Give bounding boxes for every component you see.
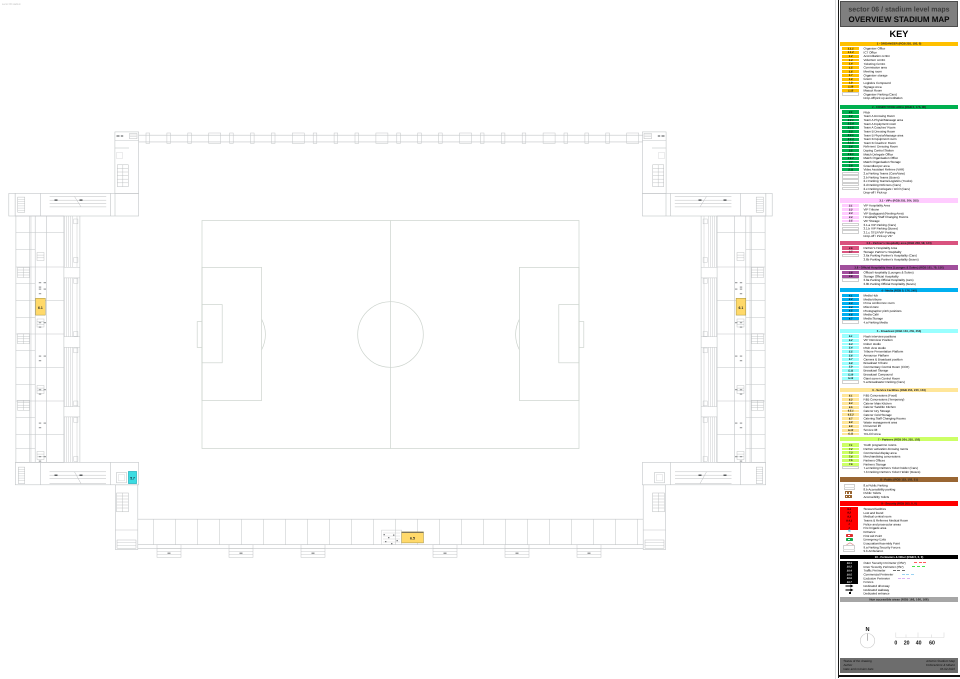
svg-text:TELCO Area: TELCO Area: [864, 432, 881, 436]
svg-text:Team B Physio/Massage area: Team B Physio/Massage area: [864, 133, 904, 137]
svg-text:F&B Concessions (Temporary): F&B Concessions (Temporary): [864, 397, 905, 401]
svg-text:Photographer pitch positions: Photographer pitch positions: [864, 309, 903, 313]
svg-text:0: 0: [894, 641, 897, 647]
svg-text:Camera & Broadcast position: Camera & Broadcast position: [864, 357, 903, 361]
svg-text:7.b Parking Partners Ticket Ho: 7.b Parking Partners Ticket Holder (Buse…: [864, 470, 921, 474]
svg-text:First Aid Point: First Aid Point: [864, 534, 883, 538]
svg-text:Referees' Dressing Room: Referees' Dressing Room: [864, 145, 899, 149]
svg-text:Team B Coaches' Room: Team B Coaches' Room: [864, 141, 897, 145]
svg-text:Organiser Office: Organiser Office: [864, 47, 886, 51]
svg-text:Partners Offices: Partners Offices: [864, 458, 886, 462]
svg-text:Teams & Referees Medical Room: Teams & Referees Medical Room: [864, 519, 909, 523]
svg-text:Dedicated driveway: Dedicated driveway: [864, 584, 891, 588]
svg-text:Partner activation dressing ro: Partner activation dressing rooms: [864, 447, 909, 451]
svg-text:Groundkeeper area: Groundkeeper area: [864, 164, 890, 168]
svg-text:Video Assistant Referee (VAR): Video Assistant Referee (VAR): [864, 168, 905, 172]
svg-text:Official Hospitality (Lounges: Official Hospitality (Lounges & Suites): [864, 271, 914, 275]
svg-text:Outer Security Perimeter (OSP): Outer Security Perimeter (OSP): [864, 561, 906, 565]
svg-text:VIP Hospitality Area: VIP Hospitality Area: [864, 204, 891, 208]
svg-text:Match Delegate Office: Match Delegate Office: [864, 152, 894, 156]
svg-text:Hospitality Staff Changing Roo: Hospitality Staff Changing Rooms: [864, 215, 909, 219]
svg-text:Match Organisation Office: Match Organisation Office: [864, 156, 899, 160]
svg-text:Emergency Exits: Emergency Exits: [864, 538, 887, 542]
svg-text:Volunteer centre: Volunteer centre: [864, 58, 886, 62]
svg-text:Medical central room: Medical central room: [864, 515, 892, 519]
svg-text:Drop-off / Pick-up: Drop-off / Pick-up: [864, 191, 888, 195]
svg-text:Logistics Compound: Logistics Compound: [864, 81, 892, 85]
svg-text:Media Hub: Media Hub: [864, 294, 879, 298]
svg-text:Broadcast Tribune: Broadcast Tribune: [864, 361, 889, 365]
svg-text:Commission area: Commission area: [864, 66, 888, 70]
svg-text:Commercial display area: Commercial display area: [864, 451, 897, 455]
svg-text:Lost and found: Lost and found: [864, 511, 884, 515]
svg-text:Storage Official Hospitality: Storage Official Hospitality: [864, 274, 900, 278]
svg-text:Accreditation centre: Accreditation centre: [864, 54, 891, 58]
svg-text:3.1.c STEP/VIP Parking: 3.1.c STEP/VIP Parking: [864, 230, 896, 234]
svg-text:Partners Storage: Partners Storage: [864, 462, 887, 466]
svg-text:Announce Platform: Announce Platform: [864, 353, 890, 357]
svg-text:8.b Accessibility parking: 8.b Accessibility parking: [864, 487, 896, 491]
svg-text:5.a Broadcaster Parking (Cars): 5.a Broadcaster Parking (Cars): [864, 380, 905, 384]
svg-text:VIP Interview Position: VIP Interview Position: [864, 338, 893, 342]
svg-text:Organiser Parking (Cars): Organiser Parking (Cars): [864, 92, 897, 96]
svg-text:Tribune Presentation Platform: Tribune Presentation Platform: [864, 350, 904, 354]
svg-text:Fences: Fences: [864, 580, 874, 584]
svg-text:VIP Bodyguard (Resting Area): VIP Bodyguard (Resting Area): [864, 211, 904, 215]
svg-text:Caterer Satellite Kitchen: Caterer Satellite Kitchen: [864, 405, 897, 409]
svg-text:Fire brigade area: Fire brigade area: [864, 526, 887, 530]
svg-text:3.6a Parking Partner's Hospita: 3.6a Parking Partner's Hospitality (Cars…: [864, 254, 917, 258]
svg-text:N: N: [865, 627, 869, 633]
svg-text:Accessibility Toilets: Accessibility Toilets: [864, 495, 890, 499]
svg-text:Team B Equipment room: Team B Equipment room: [864, 137, 898, 141]
svg-text:2.e Parking Delegate / DCO (Ca: 2.e Parking Delegate / DCO (Cars): [864, 187, 910, 191]
svg-text:Team A Dressing Room: Team A Dressing Room: [864, 114, 896, 118]
svg-text:Pitch: Pitch: [864, 110, 871, 114]
svg-text:3.1.a VIP Parking (Cars): 3.1.a VIP Parking (Cars): [864, 223, 896, 227]
svg-text:Waste management area: Waste management area: [864, 420, 898, 424]
svg-text:Commercial Perimeter: Commercial Perimeter: [864, 573, 894, 577]
svg-text:KEY: KEY: [890, 29, 909, 39]
svg-text:3.8b Parking Official Hospital: 3.8b Parking Official Hospitality (buses…: [864, 282, 916, 286]
svg-text:VIP Tribune: VIP Tribune: [864, 207, 880, 211]
svg-text:7.a Parking Partners Ticket ho: 7.a Parking Partners Ticket holder (Cars…: [864, 466, 918, 470]
svg-text:5.7: 5.7: [130, 477, 135, 481]
svg-text:9.a Parking Security Forces: 9.a Parking Security Forces: [864, 545, 901, 549]
svg-text:Youth programme rooms: Youth programme rooms: [864, 443, 897, 447]
svg-text:Merchandising concessions: Merchandising concessions: [864, 455, 901, 459]
svg-text:3.8a Parking Official Hospital: 3.8a Parking Official Hospitality (cars): [864, 278, 914, 282]
svg-text:8.a Public Parking: 8.a Public Parking: [864, 483, 889, 487]
svg-text:Mixed zone: Mixed zone: [864, 305, 880, 309]
svg-text:2.c Parking Teams/Logistics (T: 2.c Parking Teams/Logistics (Trucks): [864, 179, 913, 183]
svg-text:Indoor studio: Indoor studio: [864, 342, 882, 346]
svg-text:Organiser storage: Organiser storage: [864, 73, 888, 77]
svg-text:Dedicated entrance: Dedicated entrance: [864, 592, 890, 596]
svg-text:Match Organisation Storage: Match Organisation Storage: [864, 160, 902, 164]
svg-text:Team A Physio/Massage area: Team A Physio/Massage area: [864, 118, 904, 122]
svg-text:Team A Coaches' Room: Team A Coaches' Room: [864, 126, 896, 130]
svg-text:Drop-off/pick up accreditation: Drop-off/pick up accreditation: [864, 96, 903, 100]
svg-text:Caterer Main Kitchen: Caterer Main Kitchen: [864, 401, 893, 405]
svg-text:Broadcast Compound: Broadcast Compound: [864, 373, 893, 377]
svg-text:Public Toilets: Public Toilets: [864, 491, 882, 495]
svg-text:Exclusive Perimeter: Exclusive Perimeter: [864, 576, 891, 580]
svg-text:Personnel lift: Personnel lift: [864, 424, 882, 428]
svg-text:Mascot Room: Mascot Room: [864, 89, 883, 93]
svg-text:Caterer Dry Storage: Caterer Dry Storage: [864, 409, 891, 413]
svg-text:Doping Control Station: Doping Control Station: [864, 149, 895, 153]
svg-text:Media Café: Media Café: [864, 313, 880, 317]
svg-text:20: 20: [904, 641, 910, 647]
svg-text:40: 40: [916, 641, 922, 647]
svg-text:ICT Office: ICT Office: [864, 50, 878, 54]
svg-text:Storage Partner's Hospitality: Storage Partner's Hospitality: [864, 250, 902, 254]
svg-text:Green: Green: [864, 77, 873, 81]
svg-text:Commentary Control Room (CCR): Commentary Control Room (CCR): [864, 365, 910, 369]
svg-text:Press conference room: Press conference room: [864, 301, 896, 305]
svg-text:Signage Area: Signage Area: [864, 85, 882, 89]
svg-text:Service lift: Service lift: [864, 428, 878, 432]
svg-text:3.1.b VIP Parking (Buses): 3.1.b VIP Parking (Buses): [864, 227, 898, 231]
svg-text:60: 60: [929, 641, 935, 647]
svg-text:Police and prosecutor areas: Police and prosecutor areas: [864, 522, 902, 526]
svg-text:Evacuation/Assembly Point: Evacuation/Assembly Point: [864, 541, 901, 545]
svg-text:Inner Security Perimeter (ISP): Inner Security Perimeter (ISP): [864, 565, 904, 569]
svg-text:Caterer Cold Storage: Caterer Cold Storage: [864, 413, 893, 417]
svg-text:6.1: 6.1: [739, 306, 744, 310]
svg-text:3.6b Parking Partner's Hospita: 3.6b Parking Partner's Hospitality (buse…: [864, 258, 919, 262]
svg-text:Catering Staff Changing Rooms: Catering Staff Changing Rooms: [864, 417, 907, 421]
svg-text:4.a Parking Media: 4.a Parking Media: [864, 320, 889, 324]
svg-text:F&B Concessions (Food): F&B Concessions (Food): [864, 394, 898, 398]
svg-text:2.d Parking Referees (Cars): 2.d Parking Referees (Cars): [864, 183, 901, 187]
svg-text:Broadcast Storage: Broadcast Storage: [864, 369, 889, 373]
svg-text:6.1: 6.1: [38, 306, 43, 310]
svg-text:Flash interview positions: Flash interview positions: [864, 334, 897, 338]
svg-text:Team B Dressing Room: Team B Dressing Room: [864, 129, 896, 133]
svg-text:Traffic Perimeter: Traffic Perimeter: [864, 569, 886, 573]
svg-text:Meeting room: Meeting room: [864, 69, 883, 73]
svg-text:2.b Parking Teams (Buses): 2.b Parking Teams (Buses): [864, 175, 900, 179]
svg-text:Media tribune: Media tribune: [864, 297, 883, 301]
svg-text:2.a Parking Teams (Cars/Vans): 2.a Parking Teams (Cars/Vans): [864, 171, 905, 175]
svg-text:Pitch view studio: Pitch view studio: [864, 346, 887, 350]
svg-text:Steward facilities: Steward facilities: [864, 507, 887, 511]
svg-text:Entrance: Entrance: [864, 530, 876, 534]
svg-text:Media Storage: Media Storage: [864, 316, 884, 320]
svg-text:Partner's Hospitality Area: Partner's Hospitality Area: [864, 246, 898, 250]
svg-text:9.b Ambulance: 9.b Ambulance: [864, 549, 884, 553]
svg-text:Team A Equipment room: Team A Equipment room: [864, 122, 897, 126]
svg-text:Dedicated walkway: Dedicated walkway: [864, 588, 890, 592]
svg-text:VIP Storage: VIP Storage: [864, 219, 880, 223]
svg-text:Drop-off / Pick-up VIP: Drop-off / Pick-up VIP: [864, 234, 893, 238]
svg-text:Giant screen Control Room: Giant screen Control Room: [864, 376, 901, 380]
svg-text:Ticketing Centre: Ticketing Centre: [864, 62, 886, 66]
svg-text:6.5: 6.5: [410, 536, 415, 540]
